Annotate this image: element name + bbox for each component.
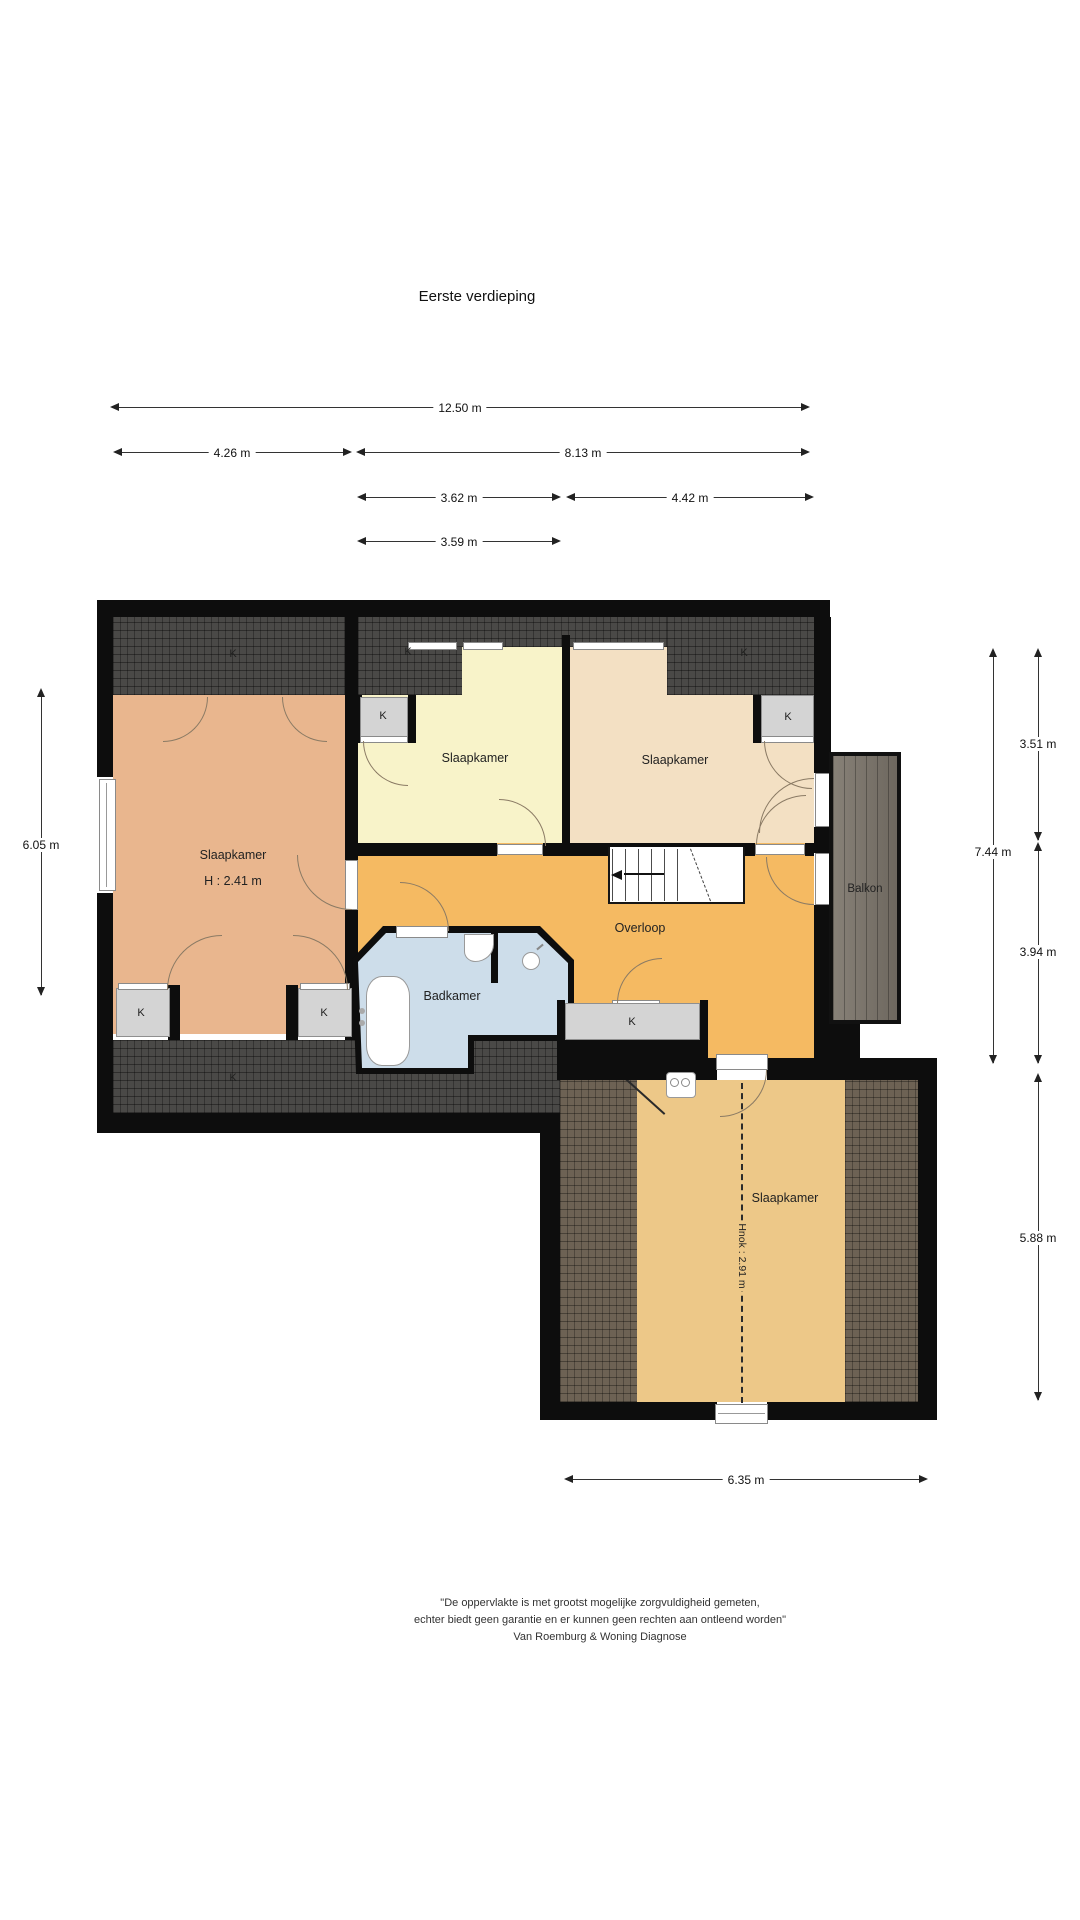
wall-rooms-landing-3 <box>805 843 814 856</box>
wall-closet-landing-bottom <box>557 1037 708 1060</box>
boiler-dial-2 <box>681 1078 690 1087</box>
dim-arrow <box>801 403 810 411</box>
window-sill-top-1 <box>408 642 457 650</box>
wall-rooms-landing-1 <box>345 843 497 856</box>
closet-label-roof-1: K <box>229 648 236 660</box>
dim-arrow <box>989 648 997 657</box>
door-sill-bedroom-right <box>755 844 805 855</box>
window-bottomroom <box>715 1404 768 1424</box>
closet-label-landing: K <box>628 1016 635 1028</box>
window-bottomroom-glass-line <box>718 1413 765 1414</box>
disclaimer-line-1: "De oppervlakte is met grootst mogelijke… <box>340 1595 860 1612</box>
dim-arrow <box>1034 832 1042 841</box>
dim-arrow <box>552 537 561 545</box>
staircase-arrow-line <box>624 873 664 875</box>
dim-label-mid-left: 3.62 m <box>436 491 483 505</box>
wall-right-upper <box>814 617 831 773</box>
page-title: Eerste verdieping <box>419 288 536 305</box>
wall-right-corner <box>814 1020 860 1063</box>
disclaimer: "De oppervlakte is met grootst mogelijke… <box>340 1595 860 1646</box>
dim-arrow <box>801 448 810 456</box>
closet-label-l1: K <box>137 1007 144 1019</box>
dim-label-small: 3.59 m <box>436 535 483 549</box>
dim-label-left-height: 6.05 m <box>18 838 65 852</box>
wall-top <box>97 600 830 617</box>
closet-label-roof-3: K <box>740 647 747 659</box>
dim-label-top-left: 4.26 m <box>209 446 256 460</box>
dim-arrow <box>37 688 45 697</box>
dim-label-bottom-width: 6.35 m <box>723 1473 770 1487</box>
closet-label-right: K <box>784 711 791 723</box>
closet-label-roof-2: K <box>404 646 411 658</box>
dim-label-top-total: 12.50 m <box>433 401 486 415</box>
closet-label-roof-4: K <box>229 1072 236 1084</box>
wall-bottomroom-bottom-2 <box>767 1402 937 1420</box>
door-balcony-lower <box>815 853 830 905</box>
wall-bottomroom-left <box>540 1133 560 1402</box>
bathtub-tap-2 <box>359 1020 365 1026</box>
dim-label-mid-right: 4.42 m <box>667 491 714 505</box>
dim-arrow <box>552 493 561 501</box>
closet-label-mid: K <box>379 710 386 722</box>
dim-label-right-lower: 3.94 m <box>1015 945 1062 959</box>
room-label-balcony: Balkon <box>847 883 882 895</box>
dim-arrow <box>919 1475 928 1483</box>
dim-label-right-total: 7.44 m <box>970 845 1017 859</box>
roof-hatch-bottomroom-right <box>845 1080 918 1402</box>
closet-label-l2: K <box>320 1007 327 1019</box>
dim-arrow <box>1034 842 1042 851</box>
disclaimer-line-2: echter biedt geen garantie en er kunnen … <box>340 1612 860 1629</box>
dim-arrow <box>1034 1392 1042 1401</box>
dim-arrow <box>113 448 122 456</box>
sink <box>522 952 540 970</box>
door-sill-bedroom-bottom <box>716 1054 768 1070</box>
roof-hatch-bottom-left <box>113 1040 362 1113</box>
wall-closet-mid-right <box>408 695 416 743</box>
window-left <box>99 779 116 891</box>
dim-label-top-right: 8.13 m <box>560 446 607 460</box>
wall-closet-l2 <box>286 985 298 1040</box>
wall-bottom-main <box>97 1113 560 1133</box>
window-left-glass-line <box>106 783 107 887</box>
floorplan-page: Eerste verdieping <box>0 0 1080 1920</box>
dim-arrow <box>357 537 366 545</box>
dim-arrow <box>566 493 575 501</box>
wall-bottomroom-top-right <box>767 1058 937 1080</box>
staircase-treads <box>612 849 680 901</box>
window-balcony-upper <box>815 773 830 827</box>
bathtub-tap-1 <box>359 1008 365 1014</box>
room-label-bedroom-bottom: Slaapkamer <box>752 1191 819 1205</box>
roof-hatch-bottomroom-left <box>560 1080 637 1402</box>
dim-arrow <box>989 1055 997 1064</box>
dim-label-right-upper: 3.51 m <box>1015 737 1062 751</box>
room-label-bedroom-right: Slaapkamer <box>642 753 709 767</box>
boiler-dial-1 <box>670 1078 679 1087</box>
dim-arrow <box>1034 1073 1042 1082</box>
window-sill-top-3 <box>573 642 664 650</box>
dim-arrow <box>805 493 814 501</box>
dim-label-bottom-height: 5.88 m <box>1015 1231 1062 1245</box>
room-label-landing: Overloop <box>615 921 666 935</box>
room-label-bedroom-left: Slaapkamer <box>200 848 267 862</box>
dim-arrow <box>110 403 119 411</box>
dim-arrow <box>343 448 352 456</box>
wall-left-lower <box>97 893 113 1115</box>
wall-left-upper <box>97 617 113 777</box>
roof-hatch-bottom-mid <box>362 1073 468 1113</box>
bathtub <box>366 976 410 1066</box>
closet-left-1-sill <box>118 983 168 990</box>
wall-mid-right-separator <box>562 635 570 843</box>
room-label-bathroom: Badkamer <box>424 989 481 1003</box>
wall-bottomroom-right <box>918 1080 937 1420</box>
room-note-bedroom-left: H : 2.41 m <box>204 874 262 888</box>
dim-arrow <box>357 493 366 501</box>
wall-bottomroom-bottom-1 <box>540 1402 717 1420</box>
dim-arrow <box>1034 1055 1042 1064</box>
dim-arrow <box>1034 648 1042 657</box>
disclaimer-line-3: Van Roemburg & Woning Diagnose <box>340 1629 860 1646</box>
window-sill-top-2 <box>463 642 503 650</box>
wall-closet-right-left <box>753 695 761 743</box>
dim-arrow <box>356 448 365 456</box>
ridge-height-note: Hnok : 2.91 m <box>736 1220 748 1291</box>
dim-arrow <box>564 1475 573 1483</box>
room-label-bedroom-mid: Slaapkamer <box>442 751 509 765</box>
dim-arrow <box>37 987 45 996</box>
roof-hatch-bottom-right <box>468 1033 560 1113</box>
staircase-arrow-icon <box>611 870 622 880</box>
